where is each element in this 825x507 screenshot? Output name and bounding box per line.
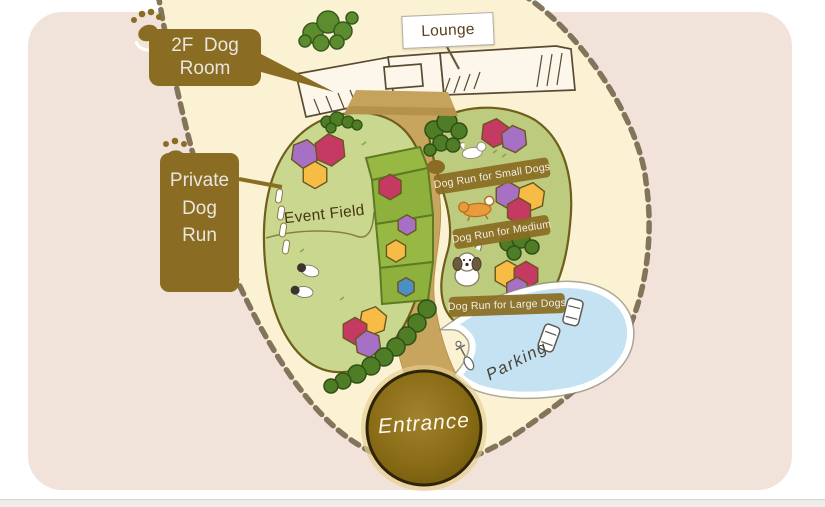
window (384, 64, 423, 89)
private-line1: Private (170, 167, 229, 195)
lounge-label-text: Lounge (421, 20, 475, 40)
dog-run-large-band: Dog Run for Large Dogs (449, 293, 566, 317)
lounge-label: Lounge (401, 12, 494, 49)
dog-room-2f-line2: Room (180, 58, 231, 81)
dog-room-2f-sign: 2F Dog Room (149, 29, 261, 86)
private-line3: Run (182, 222, 217, 250)
dog-room-2f-line1: 2F Dog (171, 35, 239, 58)
dog-park-map: Lounge 2F Dog Room Private Dog Run Event… (0, 0, 825, 506)
private-dog-run-sign: Private Dog Run (160, 153, 239, 292)
private-line2: Dog (182, 195, 217, 223)
